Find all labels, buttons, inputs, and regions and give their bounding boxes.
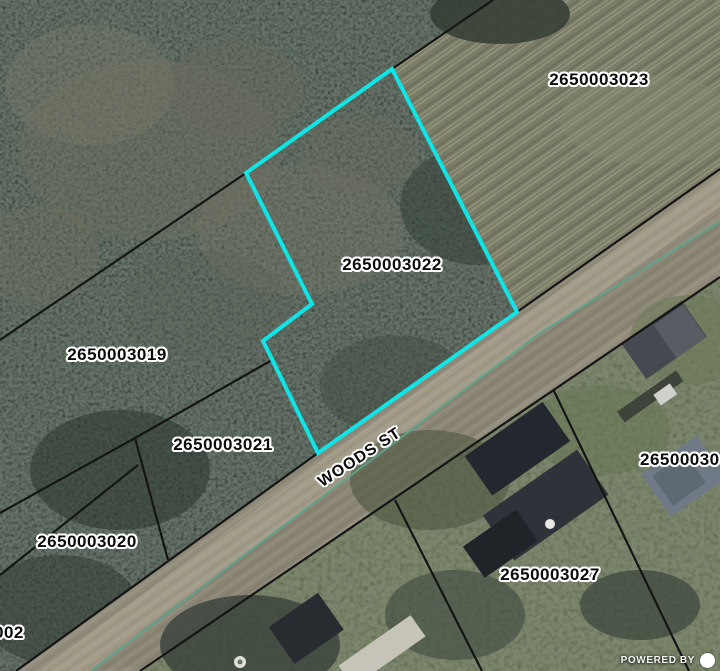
terrain-layer — [0, 0, 720, 671]
esri-logo-icon[interactable] — [700, 653, 715, 668]
powered-by-text: POWERED BY — [621, 655, 695, 666]
map-canvas[interactable]: 2650003023265000302226500030192650003021… — [0, 0, 720, 671]
map-attribution: POWERED BY — [621, 653, 715, 668]
map-vector-layer — [0, 0, 720, 671]
